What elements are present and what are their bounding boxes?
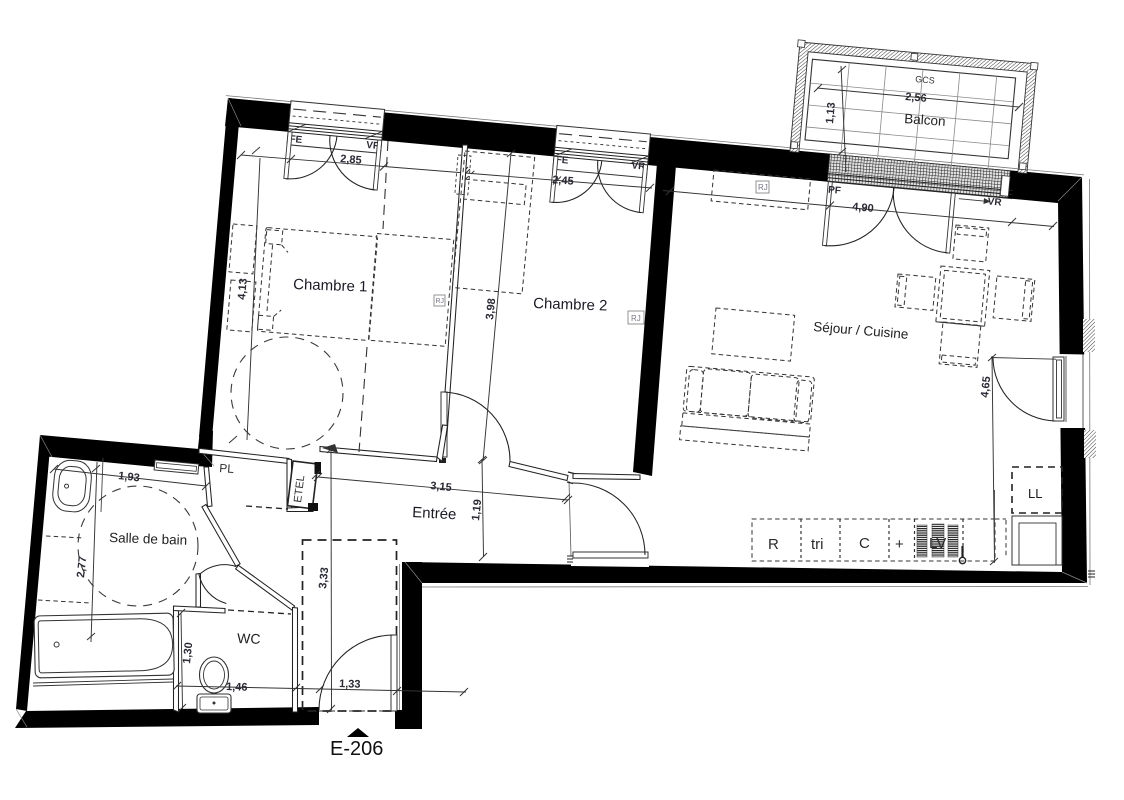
svg-text:1,93: 1,93 (118, 470, 141, 484)
svg-text:3,15: 3,15 (430, 480, 452, 494)
svg-text:1,33: 1,33 (339, 678, 361, 691)
svg-text:WC: WC (237, 630, 261, 647)
svg-text:R: R (768, 536, 779, 553)
svg-text:3,33: 3,33 (317, 567, 331, 590)
svg-text:Balcon: Balcon (904, 111, 946, 129)
svg-text:C: C (859, 535, 870, 552)
svg-text:LV: LV (929, 535, 946, 552)
svg-text:VR: VR (987, 196, 1003, 208)
svg-text:2,45: 2,45 (552, 174, 574, 188)
svg-text:3,98: 3,98 (484, 298, 498, 321)
svg-text:RJ: RJ (436, 298, 445, 305)
svg-text:Chambre 2: Chambre 2 (533, 295, 608, 315)
svg-text:1,13: 1,13 (824, 102, 838, 124)
svg-text:LL: LL (1028, 486, 1042, 501)
svg-text:+: + (895, 536, 904, 553)
svg-text:PF: PF (828, 185, 842, 197)
svg-text:E-206: E-206 (330, 738, 383, 760)
svg-text:tri: tri (811, 536, 824, 553)
svg-text:GCS: GCS (915, 74, 935, 86)
svg-text:2,77: 2,77 (75, 556, 89, 579)
svg-text:1,19: 1,19 (470, 499, 484, 522)
svg-text:PL: PL (219, 461, 235, 476)
svg-text:1,46: 1,46 (226, 681, 248, 694)
svg-text:Chambre 1: Chambre 1 (293, 276, 368, 296)
svg-text:RJ: RJ (758, 183, 768, 192)
svg-text:Entrée: Entrée (412, 504, 457, 523)
svg-text:Salle de bain: Salle de bain (109, 530, 188, 548)
svg-text:1,30: 1,30 (181, 642, 195, 665)
svg-text:4,90: 4,90 (852, 201, 874, 215)
svg-text:2,85: 2,85 (340, 153, 362, 167)
svg-text:RJ: RJ (631, 314, 641, 323)
svg-text:4,65: 4,65 (979, 376, 993, 399)
